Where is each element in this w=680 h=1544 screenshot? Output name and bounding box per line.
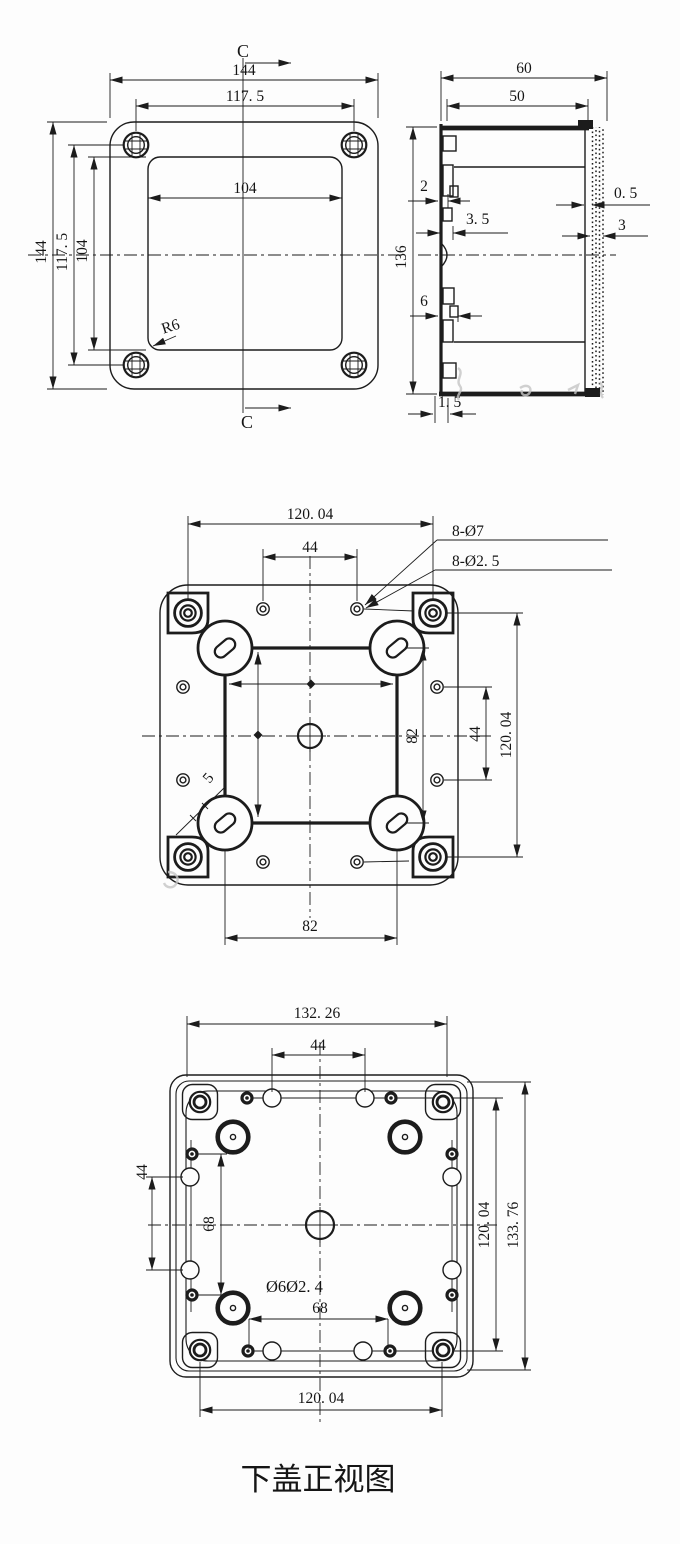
- open-hole: [181, 1261, 199, 1279]
- dim-inner-width: 104: [233, 180, 257, 197]
- dim-wall: 2: [420, 178, 428, 195]
- dim-overall-width: 132. 26: [294, 1005, 341, 1022]
- slot-boss: [198, 796, 252, 850]
- ring-boss: [218, 1293, 249, 1324]
- dim-overall-depth: 60: [516, 60, 532, 77]
- corner-screw-tab: [183, 1085, 218, 1120]
- callout-small-holes: 8-Ø2. 5: [452, 553, 500, 570]
- small-hole: [257, 603, 269, 615]
- dim-small-span-v: 44: [467, 726, 484, 742]
- pin-hole: [447, 1149, 457, 1159]
- dim-overall-height: 136: [393, 245, 410, 269]
- drawing-sheet: C C 144 117. 5 104 144 117. 5 104 R6: [0, 0, 680, 1544]
- ring-boss: [218, 1122, 249, 1153]
- bottom-cover-view: 132. 26 44 44 68 Ø6Ø2. 4 68 120. 04 133.…: [134, 1005, 531, 1422]
- dim-overall-width: 144: [232, 62, 256, 79]
- screw-head: [124, 353, 149, 378]
- dim-screw-span-v: 117. 5: [54, 233, 71, 271]
- dim-latch-depth: 3. 5: [466, 211, 490, 228]
- front-view: C C 144 117. 5 104 144 117. 5 104 R6: [28, 41, 404, 432]
- dim-gap: 0. 5: [614, 185, 638, 202]
- corner-screw-tab: [426, 1333, 461, 1368]
- dim-small-span-h: 44: [302, 539, 318, 556]
- open-hole: [443, 1168, 461, 1186]
- open-hole: [263, 1342, 281, 1360]
- pin-hole: [447, 1290, 457, 1300]
- dim-latch-width: 6: [420, 293, 428, 310]
- section-label-top: C: [237, 41, 249, 61]
- pin-hole: [386, 1093, 396, 1103]
- small-hole: [431, 681, 443, 693]
- open-hole: [443, 1261, 461, 1279]
- engineering-drawing: C C 144 117. 5 104 144 117. 5 104 R6: [0, 0, 680, 1544]
- dim-screw-span-h: 117. 5: [226, 88, 264, 105]
- dim-overall-height: 133. 76: [505, 1202, 522, 1249]
- lid-inside-view: 120. 04 44 8-Ø7 8-Ø2. 5 82 44 120. 04 82…: [142, 506, 612, 945]
- callout-hole-dias: Ø6Ø2. 4: [266, 1277, 323, 1296]
- dim-small-span-left: 44: [134, 1164, 151, 1180]
- dim-small-span-top: 44: [310, 1037, 326, 1054]
- pin-hole: [385, 1346, 395, 1356]
- small-hole: [351, 856, 363, 868]
- corner-radius-label: R6: [159, 316, 182, 338]
- dim-flange: 3: [618, 217, 626, 234]
- dim-boss-span-v: 82: [404, 728, 421, 744]
- slot-boss: [198, 621, 252, 675]
- pin-hole: [243, 1346, 253, 1356]
- pin-hole: [187, 1149, 197, 1159]
- small-hole: [351, 603, 363, 615]
- pin-hole: [242, 1093, 252, 1103]
- section-label-bottom: C: [241, 412, 253, 432]
- dim-slot-width: 5: [200, 769, 218, 786]
- screw-head: [124, 133, 149, 158]
- caption: 下盖正视图: [241, 1462, 396, 1498]
- dim-mount-span-bottom: 120. 04: [298, 1390, 345, 1407]
- dim-inner-depth: 50: [509, 88, 525, 105]
- drawing-title: 下盖正视图: [241, 1462, 396, 1498]
- dim-overall-height: 144: [33, 240, 50, 264]
- small-hole: [257, 856, 269, 868]
- corner-boss: [168, 837, 208, 877]
- screw-head: [342, 353, 367, 378]
- dim-mount-span-h: 120. 04: [287, 506, 334, 523]
- side-section-view: 60 50 136 2 3. 5 0. 5 3 6 1. 5: [393, 60, 650, 423]
- small-hole: [431, 774, 443, 786]
- corner-screw-tab: [426, 1085, 461, 1120]
- dim-hole-span-bottom: 68: [312, 1300, 328, 1317]
- dim-mount-span-right: 120. 04: [476, 1202, 493, 1249]
- gasket-stipple: [593, 127, 604, 395]
- small-hole: [177, 774, 189, 786]
- dim-inner-height: 104: [74, 239, 91, 263]
- ring-boss: [390, 1122, 421, 1153]
- ring-boss: [390, 1293, 421, 1324]
- dim-hole-span-left: 68: [201, 1216, 218, 1232]
- open-hole: [181, 1168, 199, 1186]
- dim-boss-span-h: 82: [302, 918, 318, 935]
- corner-tab: [578, 120, 593, 129]
- open-hole: [354, 1342, 372, 1360]
- dim-mount-span-v: 120. 04: [498, 712, 515, 759]
- pin-hole: [187, 1290, 197, 1300]
- callout-large-holes: 8-Ø7: [452, 523, 484, 540]
- small-hole: [177, 681, 189, 693]
- screw-head: [342, 133, 367, 158]
